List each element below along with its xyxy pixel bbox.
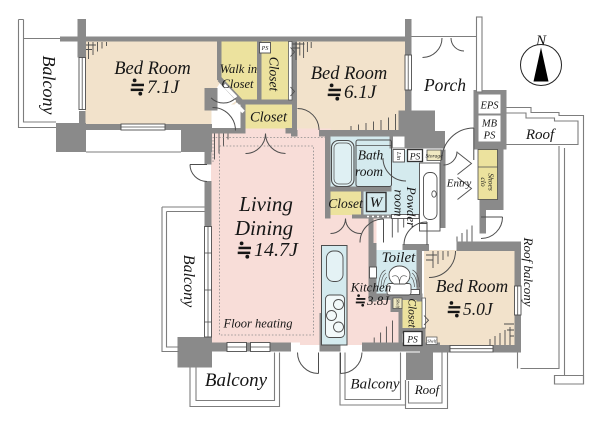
svg-text:Floor heating: Floor heating	[222, 317, 292, 331]
svg-text:Dining: Dining	[234, 216, 293, 240]
svg-text:Bed Room: Bed Room	[311, 64, 388, 84]
svg-text:Balcony: Balcony	[180, 255, 197, 308]
svg-text:Closet: Closet	[267, 57, 282, 93]
svg-text:Closet: Closet	[222, 77, 254, 91]
svg-text:Closet: Closet	[406, 298, 418, 328]
svg-text:Shelf: Shelf	[427, 339, 437, 344]
svg-text:Bath: Bath	[358, 148, 384, 163]
svg-text:Balcony: Balcony	[39, 56, 59, 115]
svg-text:14.7J: 14.7J	[254, 239, 299, 261]
svg-text:N: N	[535, 33, 547, 49]
svg-text:Roof: Roof	[414, 382, 442, 397]
svg-text:3.8J: 3.8J	[366, 293, 390, 308]
svg-text:PS: PS	[483, 131, 496, 142]
svg-text:Bed Room: Bed Room	[114, 59, 191, 79]
svg-text:PS: PS	[261, 46, 269, 52]
svg-text:Lin: Lin	[395, 151, 401, 160]
svg-text:room: room	[392, 190, 407, 217]
svg-text:Porch: Porch	[423, 75, 466, 95]
svg-text:room: room	[355, 164, 383, 179]
svg-text:Storage: Storage	[425, 154, 443, 160]
svg-text:Balcony: Balcony	[205, 370, 268, 391]
svg-text:Toilet: Toilet	[382, 250, 416, 266]
svg-text:PS: PS	[409, 153, 421, 163]
svg-text:5.0J: 5.0J	[463, 299, 494, 319]
svg-text:MB: MB	[481, 119, 498, 130]
svg-text:Entry: Entry	[446, 178, 472, 190]
svg-text:Balcony: Balcony	[350, 377, 399, 393]
svg-text:6.1J: 6.1J	[344, 82, 378, 103]
svg-text:7.1J: 7.1J	[147, 77, 181, 98]
svg-text:Shelf: Shelf	[396, 299, 401, 309]
svg-text:Closet: Closet	[250, 110, 288, 126]
svg-text:EPS: EPS	[479, 101, 499, 112]
svg-text:Living: Living	[238, 192, 293, 216]
svg-text:Roof balcony: Roof balcony	[521, 237, 536, 307]
svg-text:Walk in: Walk in	[220, 62, 257, 76]
svg-text:Closet: Closet	[328, 196, 364, 211]
svg-text:clo: clo	[479, 177, 488, 186]
svg-text:W: W	[370, 195, 384, 211]
svg-text:Roof: Roof	[525, 127, 556, 143]
svg-text:PS: PS	[406, 336, 418, 346]
svg-text:Bed Room: Bed Room	[436, 276, 508, 296]
